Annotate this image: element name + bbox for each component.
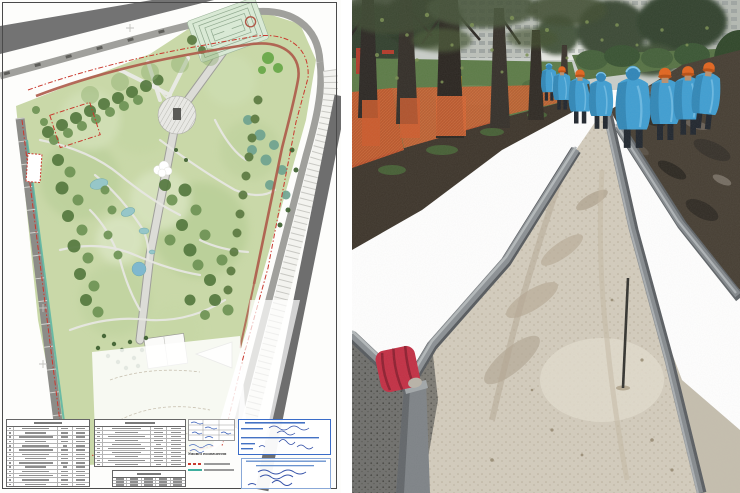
legend-item-boundary	[188, 463, 236, 465]
plan-sheet-panel: Умовні позначення	[0, 0, 341, 493]
legend-title: Умовні позначення	[188, 452, 216, 456]
explication-table-right	[94, 419, 186, 467]
table-header	[113, 471, 185, 478]
revision-stamp	[188, 419, 235, 441]
plan-legend: Умовні позначення	[188, 452, 236, 486]
table-row	[7, 482, 89, 486]
legend-label-bar	[204, 469, 234, 471]
legend-swatch-red-dashed	[188, 463, 202, 465]
table-row	[95, 462, 185, 466]
photo-grain	[352, 0, 740, 493]
legend-swatch-teal	[188, 469, 202, 471]
legend-item-improvement	[188, 469, 236, 471]
approval-stamp-1	[238, 419, 331, 455]
central-plaza	[158, 96, 196, 134]
table-header	[7, 420, 89, 427]
indicators-table	[112, 470, 186, 487]
construction-photo-panel	[352, 0, 740, 493]
table-row	[113, 483, 185, 486]
table-header	[95, 420, 185, 427]
screenshot-root: Умовні позначення	[0, 0, 740, 493]
approval-stamp-2	[241, 458, 331, 489]
legend-label-bar	[204, 463, 230, 465]
construction-photo	[352, 0, 740, 493]
handwritten-notes	[188, 441, 230, 452]
explication-table-left	[6, 419, 90, 487]
